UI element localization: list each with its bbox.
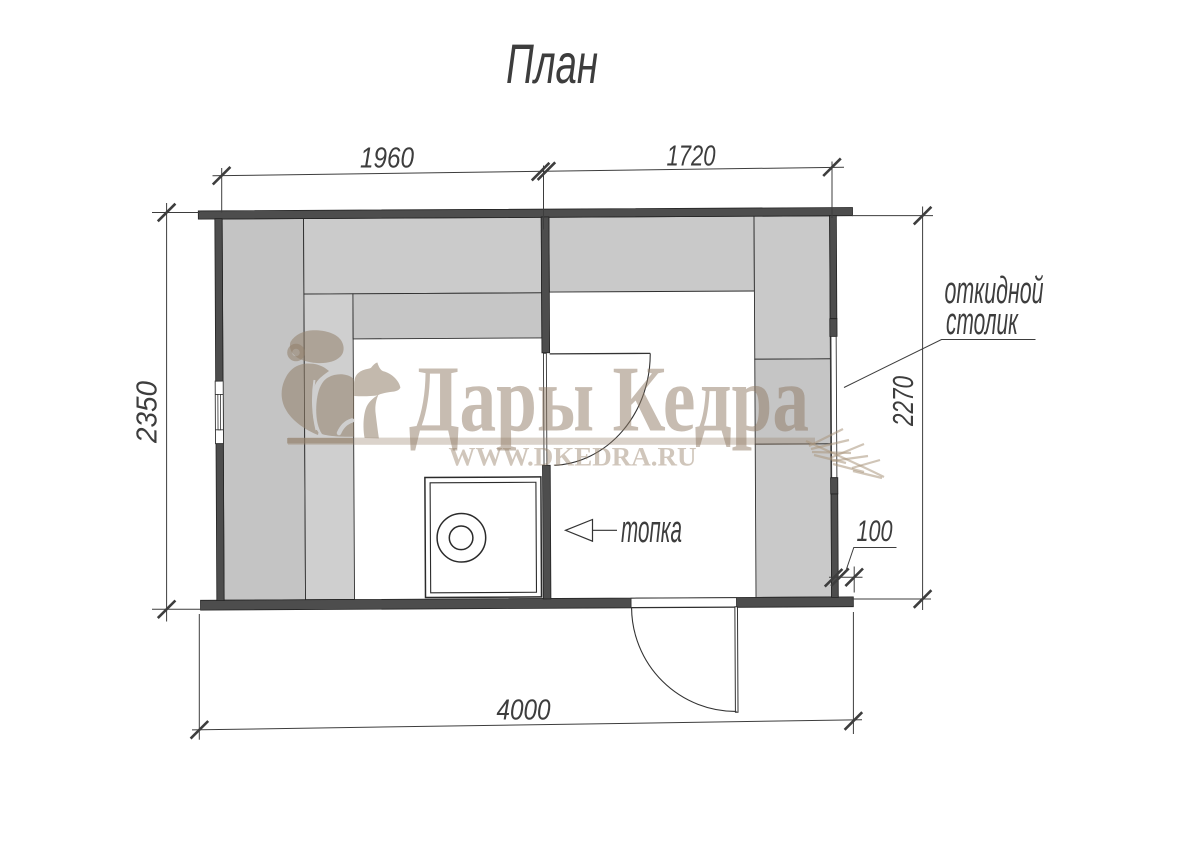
svg-text:WWW.DKEDRA.RU: WWW.DKEDRA.RU	[449, 442, 697, 472]
svg-text:План: План	[506, 32, 598, 95]
svg-text:2350: 2350	[132, 381, 164, 444]
svg-text:Дары Кедра: Дары Кедра	[409, 348, 809, 452]
svg-text:топка: топка	[621, 509, 682, 551]
svg-text:столик: столик	[946, 301, 1019, 343]
svg-text:1960: 1960	[360, 142, 414, 174]
svg-text:2270: 2270	[888, 376, 920, 427]
svg-text:1720: 1720	[667, 141, 716, 173]
svg-text:4000: 4000	[497, 694, 551, 726]
svg-text:100: 100	[857, 515, 893, 548]
